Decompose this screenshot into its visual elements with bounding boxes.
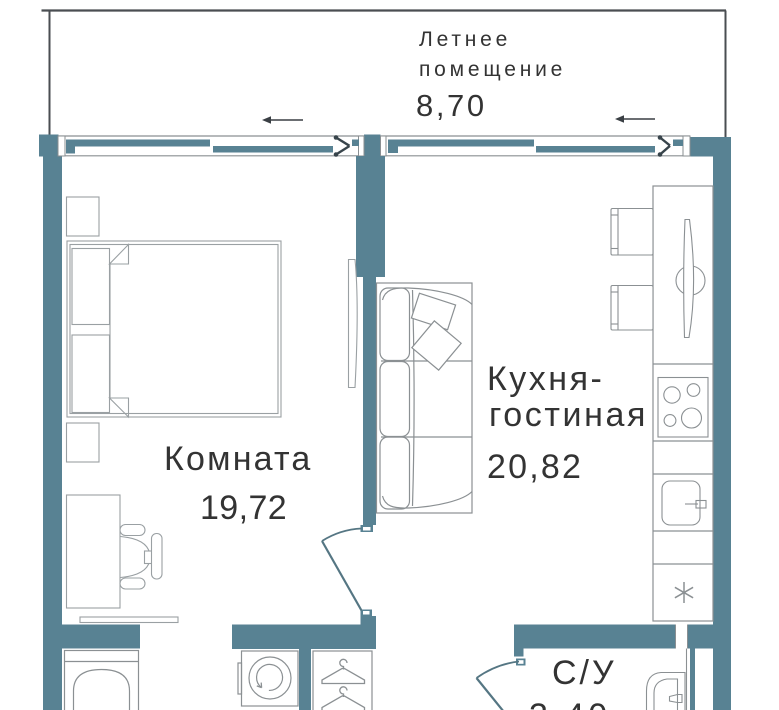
svg-text:С/У: С/У bbox=[552, 654, 617, 692]
svg-text:гостиная: гостиная bbox=[489, 396, 648, 434]
svg-text:8,70: 8,70 bbox=[416, 88, 487, 123]
svg-text:Летнее: Летнее bbox=[419, 28, 511, 51]
svg-text:20,82: 20,82 bbox=[487, 448, 583, 486]
svg-text:3,40: 3,40 bbox=[529, 697, 611, 710]
svg-text:19,72: 19,72 bbox=[200, 489, 287, 527]
svg-text:Комната: Комната bbox=[164, 440, 313, 478]
svg-text:помещение: помещение bbox=[419, 58, 566, 81]
svg-text:Кухня-: Кухня- bbox=[487, 360, 604, 398]
